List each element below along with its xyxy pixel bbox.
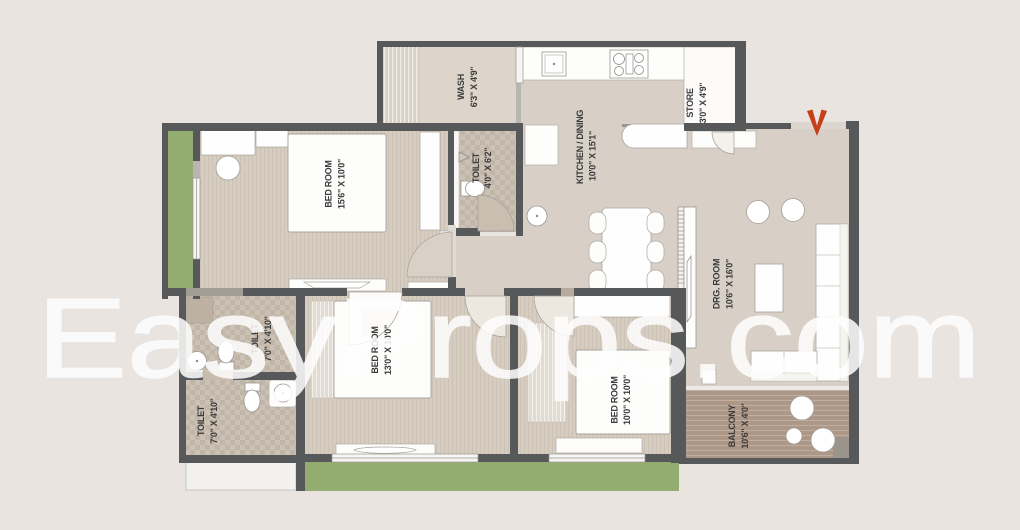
svg-text:3'0" X 4'9": 3'0" X 4'9" [698,83,708,124]
svg-text:4'0" X 6'2": 4'0" X 6'2" [483,148,493,189]
svg-text:6'3" X 4'9": 6'3" X 4'9" [469,67,479,108]
svg-text:10'0" X 15'1": 10'0" X 15'1" [588,131,598,181]
svg-text:TOILET: TOILET [471,152,481,183]
svg-text:WASH: WASH [456,74,466,100]
svg-text:EasyProps.com: EasyProps.com [37,275,981,401]
svg-text:KITCHEN / DINING: KITCHEN / DINING [575,110,585,185]
svg-text:10'6" X 4'0": 10'6" X 4'0" [740,403,750,448]
svg-text:7'0" X 4'10": 7'0" X 4'10" [209,398,219,443]
svg-text:BALCONY: BALCONY [727,405,737,448]
svg-text:STORE: STORE [685,88,695,118]
svg-text:TOILET: TOILET [196,405,206,436]
svg-text:BED ROOM: BED ROOM [324,160,334,207]
svg-text:15'6" X 10'0": 15'6" X 10'0" [337,159,347,209]
